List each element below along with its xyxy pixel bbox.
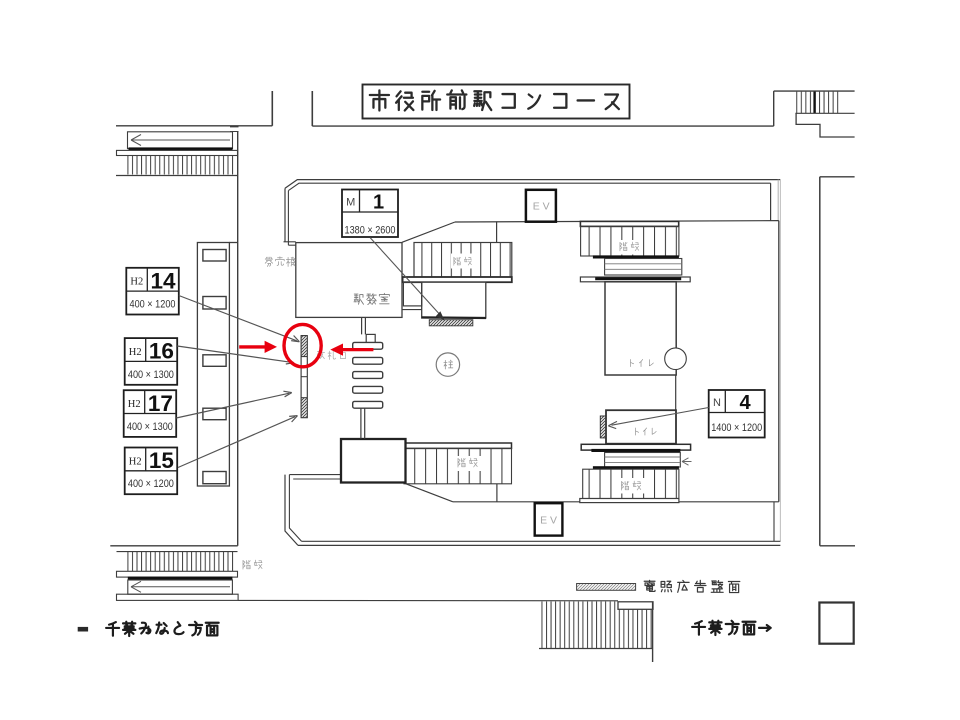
svg-text:17: 17 (148, 391, 173, 416)
svg-text:M: M (346, 197, 355, 209)
svg-text:N: N (713, 397, 721, 409)
svg-text:H2: H2 (129, 347, 142, 358)
svg-text:14: 14 (150, 268, 176, 293)
svg-text:15: 15 (149, 448, 174, 473)
svg-text:400 × 1300: 400 × 1300 (127, 421, 173, 433)
svg-text:E V: E V (533, 201, 550, 213)
svg-text:400 × 1300: 400 × 1300 (128, 369, 174, 381)
svg-text:400 × 1200: 400 × 1200 (128, 478, 174, 490)
svg-text:H2: H2 (130, 277, 143, 288)
svg-text:E V: E V (540, 515, 557, 527)
svg-text:16: 16 (149, 339, 174, 364)
svg-text:400 × 1200: 400 × 1200 (130, 299, 176, 311)
svg-text:4: 4 (739, 392, 751, 414)
svg-text:H2: H2 (128, 399, 141, 410)
svg-text:1380 × 2600: 1380 × 2600 (345, 225, 396, 237)
svg-text:1: 1 (373, 192, 384, 214)
svg-text:H2: H2 (129, 456, 142, 467)
svg-text:1400 × 1200: 1400 × 1200 (711, 422, 762, 434)
